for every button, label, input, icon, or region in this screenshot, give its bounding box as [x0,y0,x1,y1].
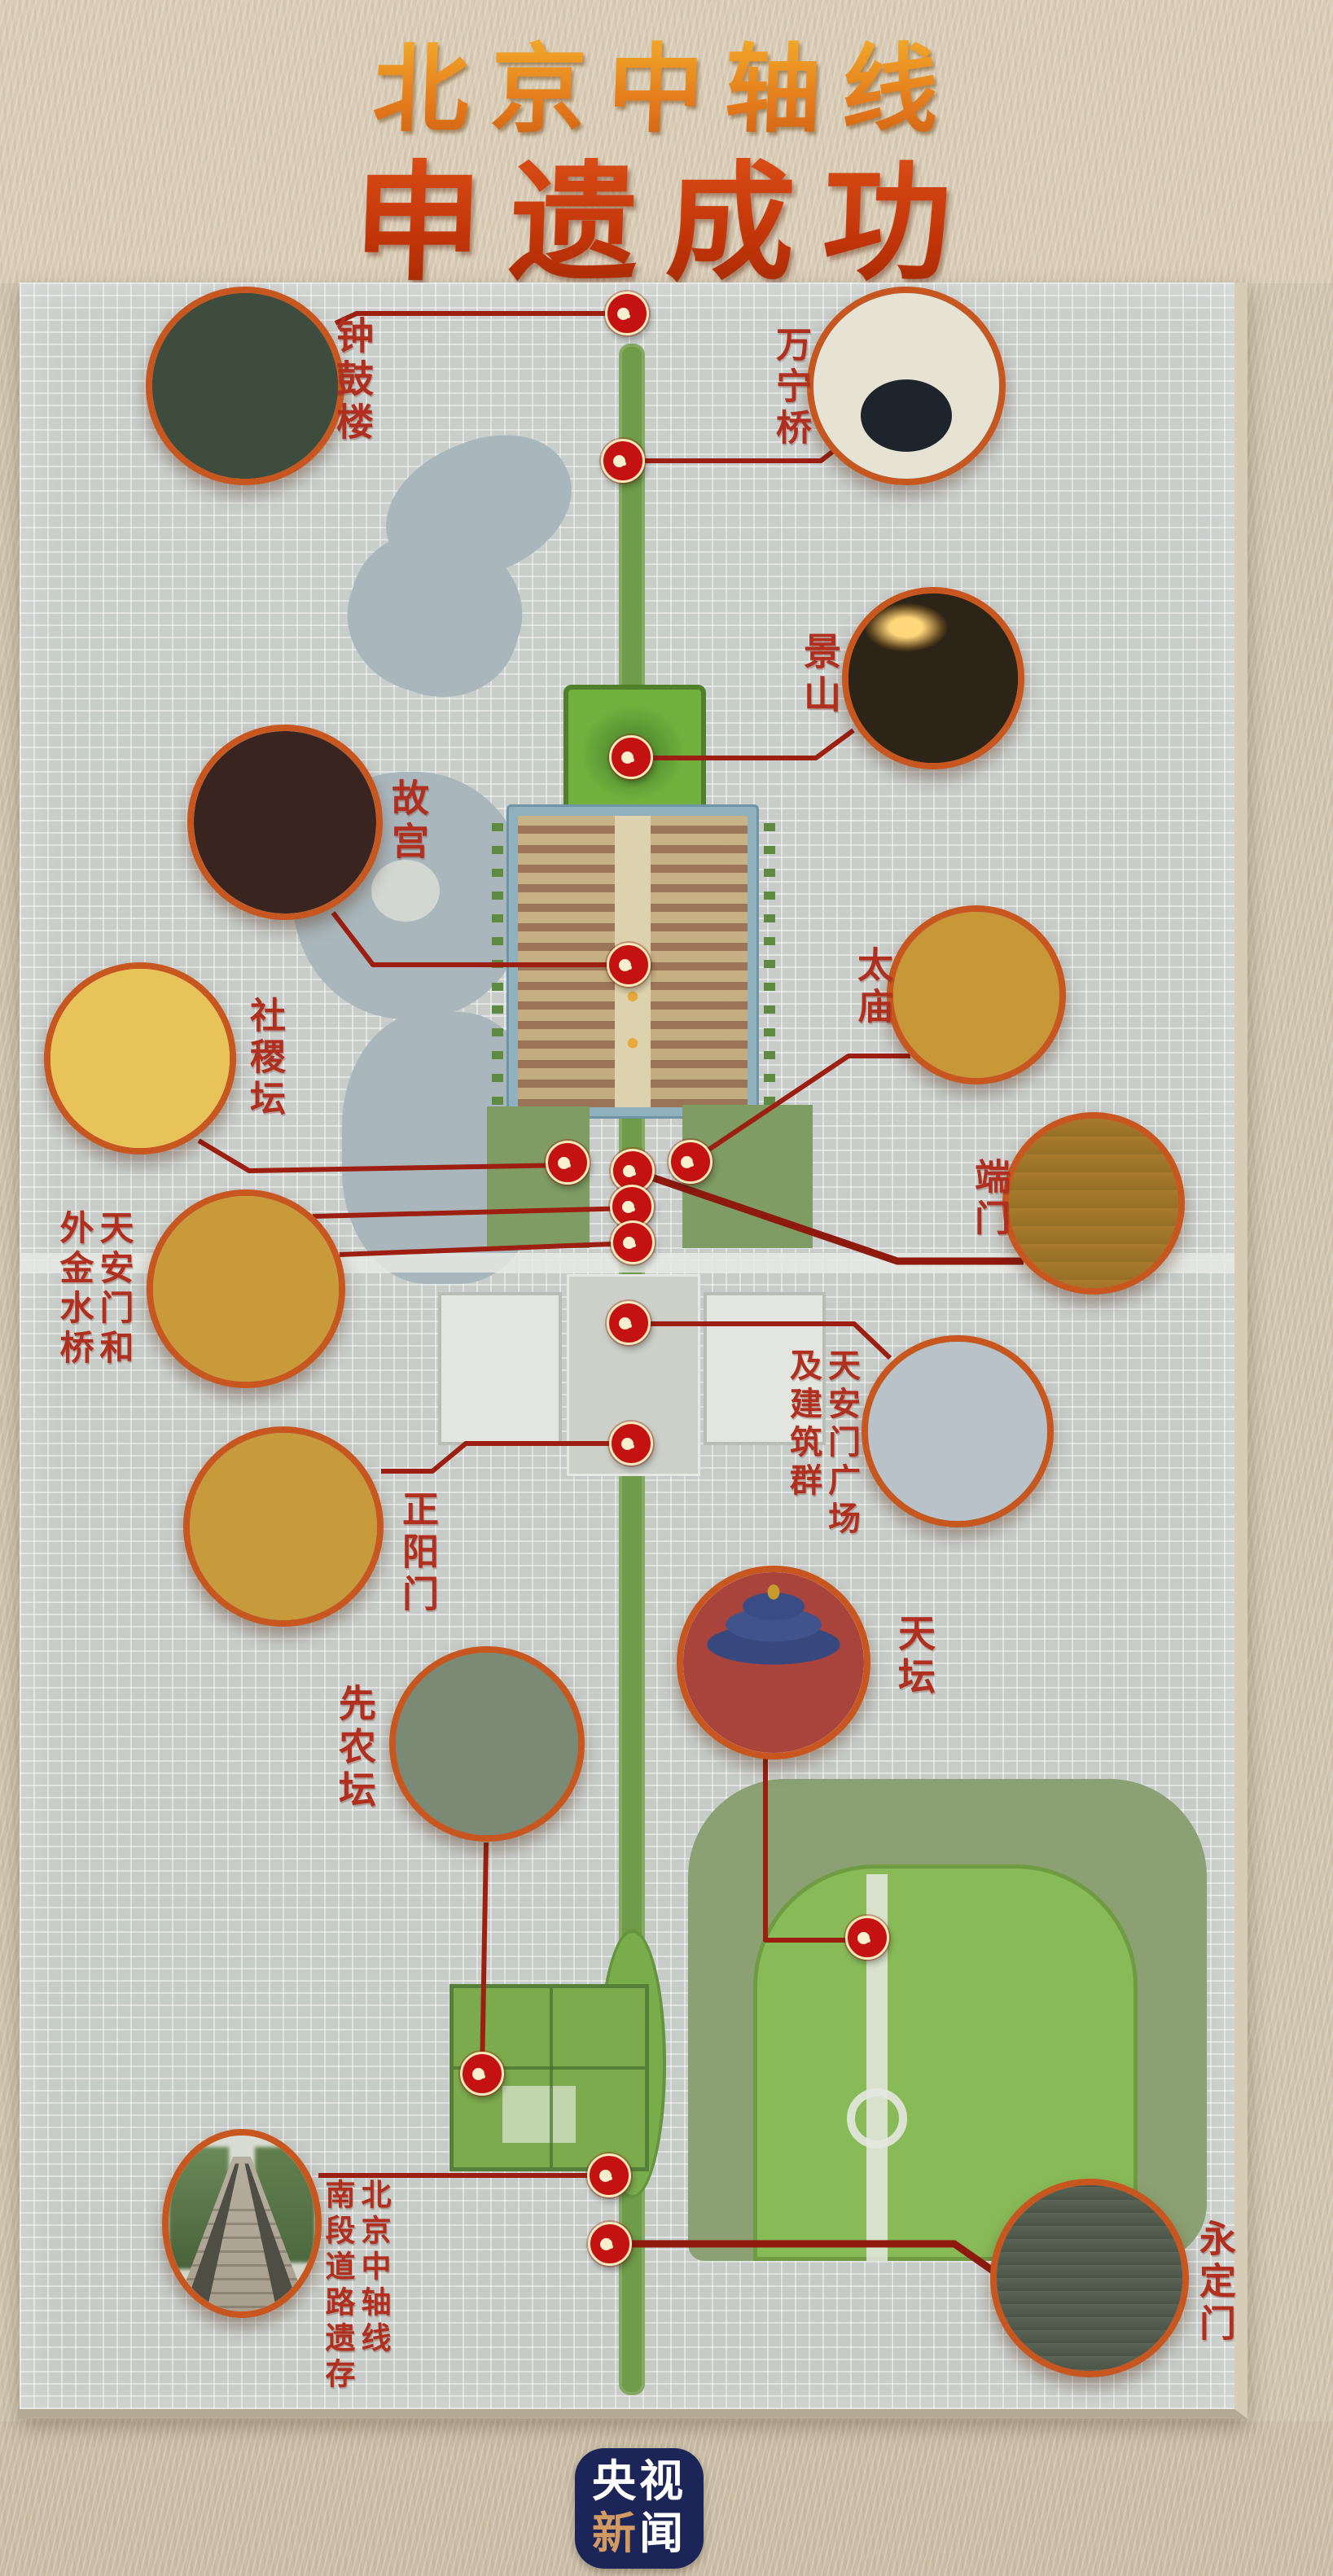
stone-road-surface [169,2136,315,2311]
map-marker-gugong [607,943,651,987]
site-label-xiannongtan: 先农坛 [336,1684,374,1813]
label-text: 永定门 [1196,2219,1233,2346]
site-label-nanduan-daolu: 北京中轴线 南段道路遗存 [322,2179,388,2394]
site-photo-duanmen [1002,1112,1185,1295]
logo-line1: 央视 [592,2456,686,2508]
logo-char-xin: 新 [592,2509,639,2558]
site-label-zhonggulou: 钟鼓楼 [334,316,371,445]
map-marker-nanduan-daolu [587,2153,631,2197]
site-photo-zhengyangmen [183,1426,384,1627]
label-text: 钟鼓楼 [334,316,371,445]
lake-shichahai [364,409,593,607]
map-marker-yongdingmen [588,2222,632,2266]
site-label-yongdingmen: 永定门 [1196,2219,1233,2346]
site-photo-tiananmen [147,1189,345,1388]
jingshan-sunset-photo [848,594,1018,763]
site-label-jingshan: 景山 [801,632,839,718]
stone-bridge-photo [813,293,999,479]
site-label-shejitan: 社稷坛 [246,997,282,1121]
moat-tree-row-right [764,820,775,1105]
map-marker-waijinshuiqiao [611,1220,655,1264]
label-text-col1: 天安门广场 [825,1348,857,1540]
duanmen-gate-photo [1009,1119,1178,1288]
site-photo-taimiao [887,905,1066,1084]
map-marker-xiannongtan [460,2052,504,2096]
tiananmen-square-photo [868,1342,1047,1521]
yongdingmen-gate-photo [997,2185,1182,2371]
label-text: 太庙 [853,946,889,1029]
label-text-col2: 南段道路遗存 [322,2179,353,2394]
site-photo-nanduan-daolu [162,2129,322,2318]
site-photo-wanningqiao [807,287,1006,485]
site-photo-yongdingmen [990,2179,1189,2377]
site-photo-shejitan [44,962,236,1154]
moat-tree-row-left [492,820,503,1105]
label-text-col1: 天安门和 [97,1210,131,1369]
site-photo-tiananmen-guangchang [862,1335,1054,1527]
temple-of-heaven-photo [683,1572,864,1753]
drum-tower-photo [152,293,338,479]
map-marker-zhengyangmen [609,1422,653,1465]
temple-of-heaven-circular-mound [847,2088,907,2149]
tiananmen-gate-photo [153,1196,339,1382]
map-marker-tiananmen-guangchang [607,1301,651,1345]
lake-zhongnanhai [342,1012,544,1284]
site-photo-xiannongtan [389,1646,585,1842]
map-marker-jingshan [609,735,653,779]
label-text: 万宁桥 [772,326,808,450]
label-text: 故宫 [389,778,427,865]
great-hall-building [438,1292,562,1445]
site-label-tiananmen-waijinshuiqiao: 天安门和 外金水桥 [57,1210,131,1369]
site-photo-jingshan [842,587,1024,769]
zhengyangmen-photo [190,1433,377,1620]
label-text: 景山 [801,632,839,718]
label-text-col1: 北京中轴线 [358,2179,388,2394]
map-marker-taimiao [669,1140,713,1184]
gravel-strip-right [169,2136,315,2311]
map-marker-tiantan [845,1916,889,1960]
site-label-taimiao: 太庙 [853,946,889,1029]
label-text-col2: 及建筑群 [787,1348,819,1540]
label-text: 先农坛 [336,1684,374,1813]
gravel-strip-left [169,2136,315,2311]
xiannongtan-hall-photo [396,1653,578,1835]
site-label-duanmen: 端门 [971,1158,1006,1241]
infographic-poster: 北京中轴线 申遗成功 [0,0,1333,2576]
lake-shichahai-south [328,512,542,717]
site-photo-gugong [187,725,383,920]
label-text: 正阳门 [399,1490,436,1617]
site-label-tiantan: 天坛 [896,1614,933,1700]
label-text: 社稷坛 [246,997,282,1121]
logo-char-wen: 闻 [639,2509,686,2558]
label-text: 天坛 [896,1614,933,1700]
map-marker-shejitan [546,1141,590,1185]
map-marker-wanningqiao [601,439,645,483]
site-label-wanningqiao: 万宁桥 [772,326,808,450]
shejitan-hall-photo [50,969,230,1148]
forbidden-city-photo [194,731,376,913]
map-marker-zhonggulou [605,291,649,335]
poster-title-line2: 申遗成功 [0,119,1333,305]
ancestral-temple-photo [893,912,1059,1078]
site-photo-tiantan [677,1566,870,1759]
site-label-gugong: 故宫 [389,778,427,865]
cctv-news-logo: 央视 新闻 [575,2448,704,2569]
site-label-zhengyangmen: 正阳门 [399,1490,436,1617]
site-photo-zhonggulou [146,287,344,485]
central-axis-line [619,344,645,2395]
label-text-col2: 外金水桥 [57,1210,91,1369]
old-stone-road-photo [169,2136,315,2311]
logo-line2: 新闻 [592,2508,686,2561]
label-text: 端门 [971,1158,1006,1241]
site-label-tiananmen-guangchang: 天安门广场 及建筑群 [787,1348,857,1540]
